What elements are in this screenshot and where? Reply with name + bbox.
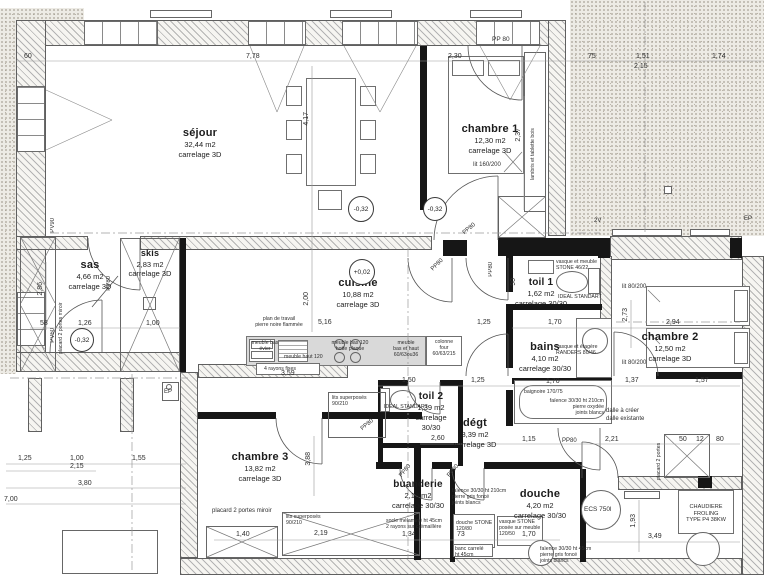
exterior-footing-top [0,8,84,20]
dim: 1,55 [132,455,146,462]
room-label-chambre3: chambre 3 13,82 m2 carrelage 3D [215,450,305,484]
kitchen-unit-label: meuble haut 120 [284,354,323,360]
washbasin-note-line: RANDERS 80/46 [556,350,598,356]
survey-marker [664,186,672,194]
shutter-box [150,10,212,18]
wall-seg [443,240,467,256]
dim: 2,15 [634,63,648,70]
dim: 1,51 [636,53,650,60]
mark-2v: 2V [594,218,601,224]
dim: 2,21 [605,436,619,443]
room-label-skis: skis 2,83 m2 carrelage 3D [118,248,182,279]
burner [350,352,361,363]
room-name: skis [118,248,182,260]
level-marker: -0,32 [348,196,374,222]
window [612,229,682,236]
door-tag: PP 80 [492,36,510,43]
shutter-box [330,10,392,18]
dim: 50 [679,436,687,443]
room-label-douche: douche 4,20 m2 carrelage 30/30 [505,487,575,521]
room-floor: carrelage 30/30 [378,501,458,511]
dim: 1,15 [522,436,536,443]
exterior-ground [570,0,764,236]
room-name: sas [55,258,125,272]
dim: 2,19 [314,530,328,537]
dim: 2,86 [37,282,44,296]
dim: 90 [510,278,517,286]
room-name: douche [505,487,575,501]
mark-ep: EP [744,216,752,222]
wall-degt-b [432,462,452,469]
room-label-toil1: toil 1 1,62 m2 carrelage 30/30 [512,276,570,309]
wall-degt-c [484,462,582,469]
worktop-note-line: pierre noire flammée [248,322,310,328]
kitchen-unit-line: évier [248,346,282,352]
window [690,229,730,236]
pillow [734,290,748,322]
room-floor: carrelage 3D [55,282,125,292]
dim: 2,37 [515,128,522,142]
bed-label: lit 80/200 [622,360,646,366]
dim: 75 [588,53,596,60]
boiler-label: CHAUDIERE FROLING TYPE P4 38KW [678,504,734,524]
boiler-silo [686,532,720,566]
level-marker: +0,02 [349,259,375,285]
tiling-note: faïence 30/30 ht 210cm pierre gris foncé… [452,488,506,506]
chair [360,120,376,140]
dim: 2,60 [431,435,445,442]
washbasin-toil1 [528,260,554,274]
worktop-note: plan de travail pierre noire flammée [248,316,310,328]
post [28,378,42,432]
wall-wing-top [610,236,742,260]
room-label-sejour: séjour 32,44 m2 carrelage 3D [150,126,250,160]
slab-note: dalle existante [606,416,644,422]
dim: 1,50 [402,377,416,384]
wall-chaufferie-top [618,476,742,490]
wc-brand: IDEAL STANDART [558,294,602,300]
bed-label: lit 160/200 [452,162,522,168]
dim: 58 [40,320,48,327]
burner [334,352,345,363]
terrace-outline [62,530,158,574]
level-value: -0,32 [354,206,369,213]
shutter-box [470,10,522,18]
post [120,378,134,432]
room-label-buanderie: buanderie 2,18 m2 carrelage 30/30 [378,478,458,511]
room-area: 12,50 m2 [630,344,710,354]
wall-seg [730,238,742,258]
window-tag: PV60 [50,328,56,343]
kitchen-unit-label: meuble bas et haut 60/63ou36 [386,340,426,358]
level-value: -0,32 [428,206,443,213]
dim: 1,93 [630,514,637,528]
dim: 2,73 [622,308,629,322]
dim: 1,00 [146,320,160,327]
room-floor: carrelage 3D [445,146,535,156]
chair [286,120,302,140]
room-name: dégt [440,416,510,430]
dim: 3,49 [648,533,662,540]
dim: 2,15 [70,463,84,470]
dim: 7,78 [246,53,260,60]
dim: 1,40 [236,531,250,538]
window [84,21,158,45]
kitchen-unit-label: colonne four 60/63/215 [428,339,460,357]
room-floor: carrelage 3D [440,440,510,450]
bunk-label-line: 90/210 [332,401,367,407]
dim: 12 [696,436,704,443]
room-area: 4,20 m2 [505,501,575,511]
pillow [734,332,748,364]
window [248,21,306,45]
laundry-note-line: 2 rayons sur crémaillère [386,524,442,530]
dim: 1,25 [18,455,32,462]
slab-note: dalle à créer [606,408,639,414]
chair [360,86,376,106]
boiler-label-line: CHAUDIERE FROLING [678,504,734,517]
room-area: 2,18 m2 [378,491,458,501]
chair [286,154,302,174]
room-area: 32,44 m2 [150,140,250,150]
tiling-note-line: joints blancs [452,500,506,506]
room-area: 13,82 m2 [215,464,305,474]
wall-chambre1-left [420,46,427,210]
wall-chambre3-top-a [198,412,276,419]
chair [360,154,376,174]
dining-table [306,78,356,186]
dim: 60 [24,53,32,60]
room-floor: carrelage 30/30 [512,299,570,309]
dim: 1,37 [625,377,639,384]
room-label-sas: sas 4,66 m2 carrelage 3D [55,258,125,292]
door-tag: PP80 [430,258,445,273]
wall-chambre3-left [180,372,198,558]
room-area: 8,39 m2 [440,430,510,440]
tiling-note-line: joints blancs [540,558,591,564]
room-area: 2,83 m2 [118,260,182,270]
level-value: -0,32 [75,337,90,344]
mark-ep: EP [164,389,172,395]
room-label-chambre2: chambre 2 12,50 m2 carrelage 3D [630,330,710,364]
wall-seg [498,238,600,256]
laundry-note: socle mélaminé ht 45cm 2 rayons sur crém… [386,518,442,530]
door-tag: PP80 [462,222,477,236]
placard-label: placard 2 portes miroir [212,508,272,514]
bathtub-note-line: joints blancs [548,410,604,416]
kitchen-unit-label: meuble bas 120 hotte plaque [324,340,376,352]
room-area: 4,66 m2 [55,272,125,282]
level-marker: -0,32 [70,328,94,352]
room-name: toil 1 [512,276,570,289]
bench-label: banc carrelé ht 45cm [455,546,484,558]
dim: 1,70 [546,378,560,385]
ski-closet-post [143,297,156,310]
window [17,86,45,152]
dim: 1,70 [548,319,562,326]
bunk-label: lits superposés 90/210 [286,514,321,526]
dim: 3,59 [281,370,295,377]
room-label-degt: dégt 8,39 m2 carrelage 3D [440,416,510,450]
bathtub-label: baignoire 170/75 [524,389,563,395]
dim: 1,70 [522,531,536,538]
niche-label: lambris et tablette bois [530,88,536,180]
floor-plan: séjour 32,44 m2 carrelage 3D chambre 1 1… [0,0,765,575]
kitchen-unit-line: 60/63ou36 [386,352,426,358]
window-tag: PV90 [50,218,56,233]
dim: 1,34 [402,531,416,538]
dim: 73 [457,531,465,538]
placard-label: placard 2 portes miroir [58,242,64,354]
kitchen-unit-label: meuble bas évier [248,340,282,352]
dim: 1,26 [78,320,92,327]
washbasin-note: vasque et meuble STONE 46/22 [556,259,597,271]
kitchen-unit-line: 60/63/215 [428,351,460,357]
dim: 4,17 [303,112,310,126]
wc-tank [588,268,600,294]
room-floor: carrelage 3D [318,300,398,310]
door-tag: PP80 [106,276,112,291]
placard-label: placard 2 portes [656,436,662,480]
exterior-footing-left [0,8,16,374]
room-name: buanderie [378,478,458,491]
pillow [452,60,484,76]
dim: 1,74 [712,53,726,60]
placard-sas [20,237,56,372]
room-name: chambre 2 [630,330,710,344]
bed-label: lit 80/200 [622,284,646,290]
wc-brand: IDEAL STANDART [384,404,428,410]
ecs-label: ECS 750l [584,506,611,513]
room-area: 10,88 m2 [318,290,398,300]
bunk-label-line: 90/210 [286,520,321,526]
wall-degt-a [376,462,402,469]
shelf [624,491,660,499]
dim: 2,94 [666,319,680,326]
door-tag: PP80 [488,262,494,277]
chair [286,86,302,106]
room-floor: carrelage 3D [118,269,182,279]
chair [318,190,342,210]
room-floor: carrelage 3D [215,474,305,484]
room-name: séjour [150,126,250,140]
kitchen-unit-line: hotte plaque [324,346,376,352]
dim: 2,00 [303,292,310,306]
room-name: chambre 3 [215,450,305,464]
washbasin-note-line: STONE 46/22 [556,265,597,271]
dim: 1,25 [471,377,485,384]
dim: 1,25 [477,319,491,326]
dim: 3,80 [78,480,92,487]
boiler-label-line: TYPE P4 38KW [678,517,734,524]
dim: 7,00 [4,496,18,503]
wall-seg [598,238,610,258]
dim: 3,88 [305,452,312,466]
room-floor: carrelage 30/30 [514,364,576,374]
dim: 80 [716,436,724,443]
wall-bains-left [506,304,513,368]
dim: 2,30 [448,53,462,60]
room-name: toil 2 [405,390,457,403]
level-marker: -0,32 [423,197,447,221]
bathtub-note: faïence 30/30 ht 210cm pierre oxydée joi… [548,398,604,416]
bench-label-line: ht 45cm [455,552,484,558]
level-value: +0,02 [354,269,370,276]
door-tag: PP80 [562,438,577,444]
dim: 5,16 [318,319,332,326]
dim: 1,57 [695,377,709,384]
bunk-label: lits superposés 90/210 [332,395,367,407]
tiling-note: faïence 30/30 ht 45cm pierre gris foncé … [540,546,591,564]
wall-right-upper [548,20,566,236]
wall-bottom [180,558,742,575]
room-floor: carrelage 3D [150,150,250,160]
pillow [488,60,520,76]
dim: 1,00 [70,455,84,462]
window [342,21,418,45]
washbasin-note: vasque et étagère RANDERS 80/46 [556,344,598,356]
